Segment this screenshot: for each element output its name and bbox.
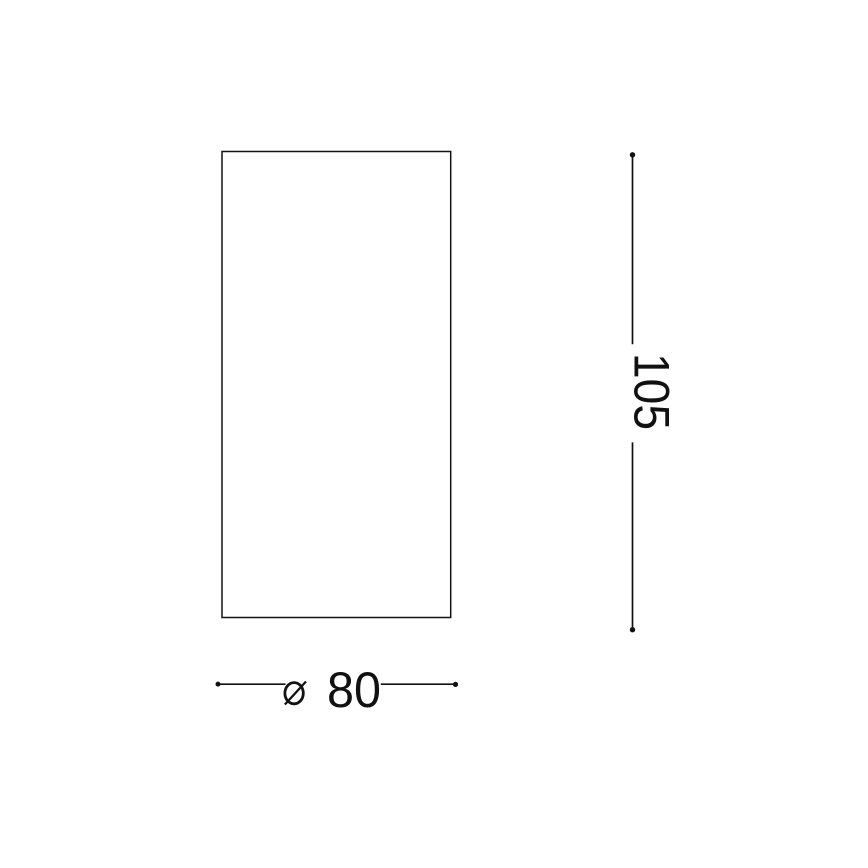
svg-text:80: 80	[327, 662, 381, 718]
svg-text:105: 105	[624, 353, 680, 430]
